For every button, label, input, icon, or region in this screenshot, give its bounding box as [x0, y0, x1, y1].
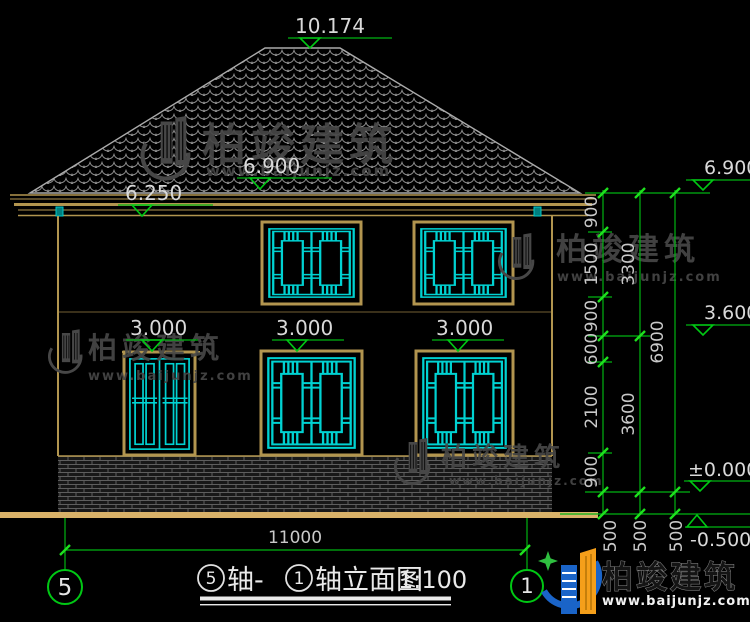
dim-value: 1500: [582, 242, 602, 285]
drawing-title: 5 轴- 1 轴立面图 1:100: [198, 565, 467, 605]
elevation-marker-lintel-right: 3.000: [432, 316, 504, 351]
elevation-value: 3.000: [130, 316, 187, 340]
elevation-value: 6.250: [125, 181, 182, 205]
dim-value: 500: [601, 520, 621, 552]
elevation-marker-lintel-mid: 3.000: [272, 316, 344, 351]
elevation-value: 3.000: [276, 316, 333, 340]
eave-fascia: [10, 195, 596, 216]
title-axis-right: 1: [294, 569, 305, 589]
elevation-value: 6.900: [704, 157, 750, 179]
elevation-value: 10.174: [295, 14, 365, 38]
window-1f-mid: [261, 351, 362, 455]
dim-value: 3300: [619, 242, 639, 285]
watermark-brand: 柏竣建筑: [441, 442, 565, 473]
elevation-marker-ridge: 10.174: [288, 14, 392, 48]
logo-brand-text: 柏竣建筑: [602, 560, 738, 596]
axis-number: 1: [520, 574, 533, 598]
watermark-right: 柏竣建筑 www.baijunjz.com: [499, 232, 721, 285]
dim-width-value: 11000: [268, 528, 322, 548]
elevation-value: 6.900: [243, 154, 300, 178]
title-underline-thick: [200, 597, 451, 601]
elevation-marker-right-zero: ±0.000: [684, 459, 750, 491]
brand-logo: 柏竣建筑 www.baijunjz.com: [538, 548, 750, 614]
dim-value: 500: [631, 520, 651, 552]
elevation-value: 3.600: [704, 302, 750, 324]
axis-number: 5: [58, 575, 73, 601]
elevation-marker-right-floor2: 3.600: [686, 302, 750, 335]
dim-value: 3600: [619, 392, 639, 435]
dim-value: 500: [667, 520, 687, 552]
watermark-logo-icon: [49, 329, 81, 372]
dim-value: 6900: [648, 320, 668, 363]
dim-value: 900: [582, 300, 602, 332]
window-2f-left: [262, 222, 361, 304]
elevation-value: ±0.000: [688, 459, 750, 481]
elevation-marker-right-eave: 6.900: [686, 157, 750, 190]
elevation-marker-right-ground: -0.500: [685, 515, 750, 551]
dim-value: 2100: [582, 385, 602, 428]
axis-bubble-left: 5: [48, 570, 82, 604]
elevation-drawing: 柏竣建筑 www.baijunjz.com 柏竣建筑 www.baijunjz.…: [0, 0, 750, 622]
eave-bracket-right: [534, 207, 541, 216]
title-mid: 轴-: [227, 565, 264, 596]
title-axis-left: 5: [206, 569, 217, 589]
logo-url-text: www.baijunjz.com: [602, 594, 750, 609]
dim-value: 900: [582, 196, 602, 228]
logo-sparkle-icon: [538, 551, 558, 571]
logo-building-icon: [544, 548, 599, 614]
window-1f-right: [416, 351, 513, 455]
watermark-logo-icon: [499, 233, 532, 278]
dim-value: 900: [582, 456, 602, 488]
elevation-value: -0.500: [690, 529, 750, 551]
ground-band: [0, 512, 598, 518]
watermark-url: www.baijunjz.com: [88, 369, 253, 384]
elevation-value: 3.000: [436, 316, 493, 340]
eave-bracket-left: [56, 207, 63, 216]
title-underline-thin: [200, 604, 451, 605]
dim-value: 600: [582, 333, 602, 365]
axis-bubble-right: 1: [511, 570, 543, 602]
watermark-url: www.baijunjz.com: [449, 474, 604, 488]
bottom-dimension: 11000: [60, 518, 530, 570]
window-1f-left: [124, 352, 195, 455]
title-scale: 1:100: [398, 566, 467, 594]
